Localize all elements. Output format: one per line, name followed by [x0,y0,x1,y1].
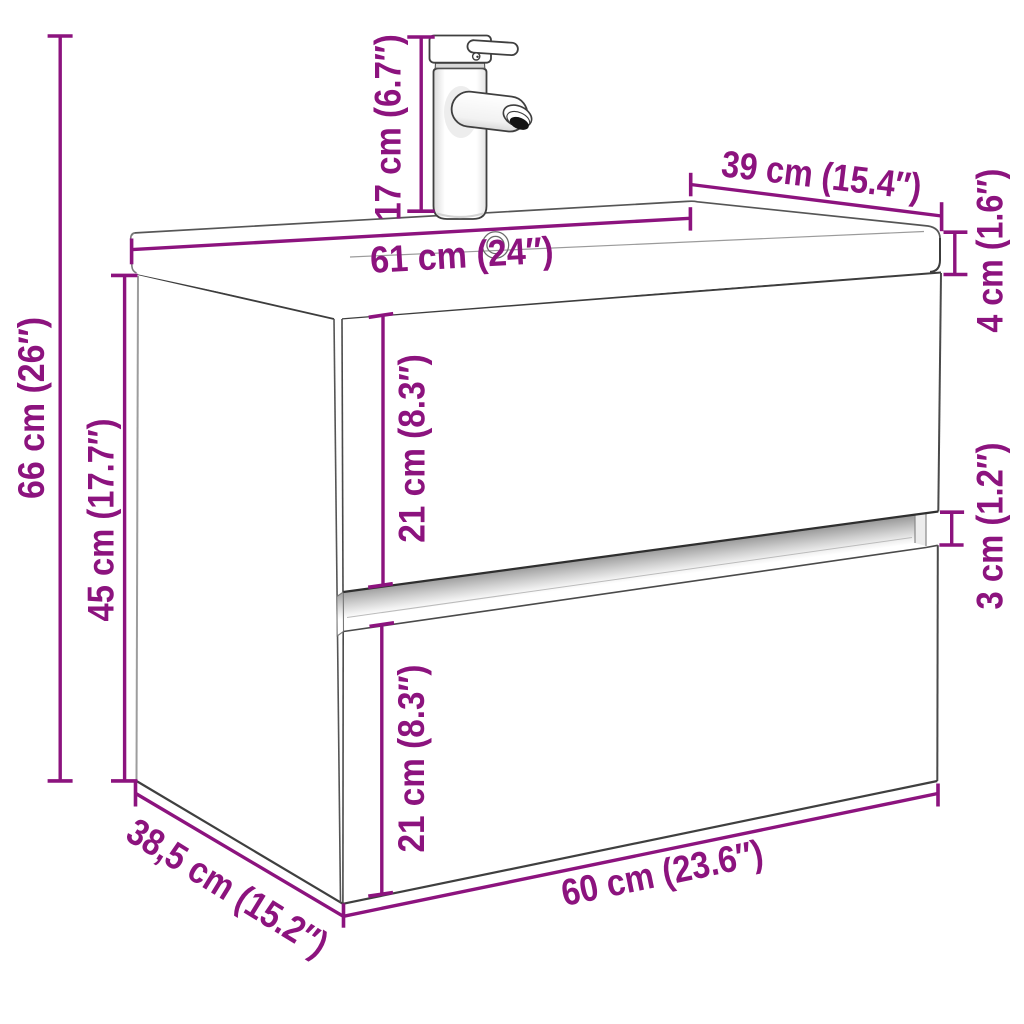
svg-text:21 cm (8.3″): 21 cm (8.3″) [391,354,433,543]
svg-text:3 cm (1.2″): 3 cm (1.2″) [969,443,1011,610]
svg-text:4 cm (1.6″): 4 cm (1.6″) [968,169,1010,333]
svg-text:66 cm (26″): 66 cm (26″) [10,317,52,499]
svg-text:17 cm (6.7″): 17 cm (6.7″) [367,34,409,221]
svg-text:45 cm (17.7″): 45 cm (17.7″) [80,419,122,622]
svg-text:21 cm (8.3″): 21 cm (8.3″) [390,665,432,853]
